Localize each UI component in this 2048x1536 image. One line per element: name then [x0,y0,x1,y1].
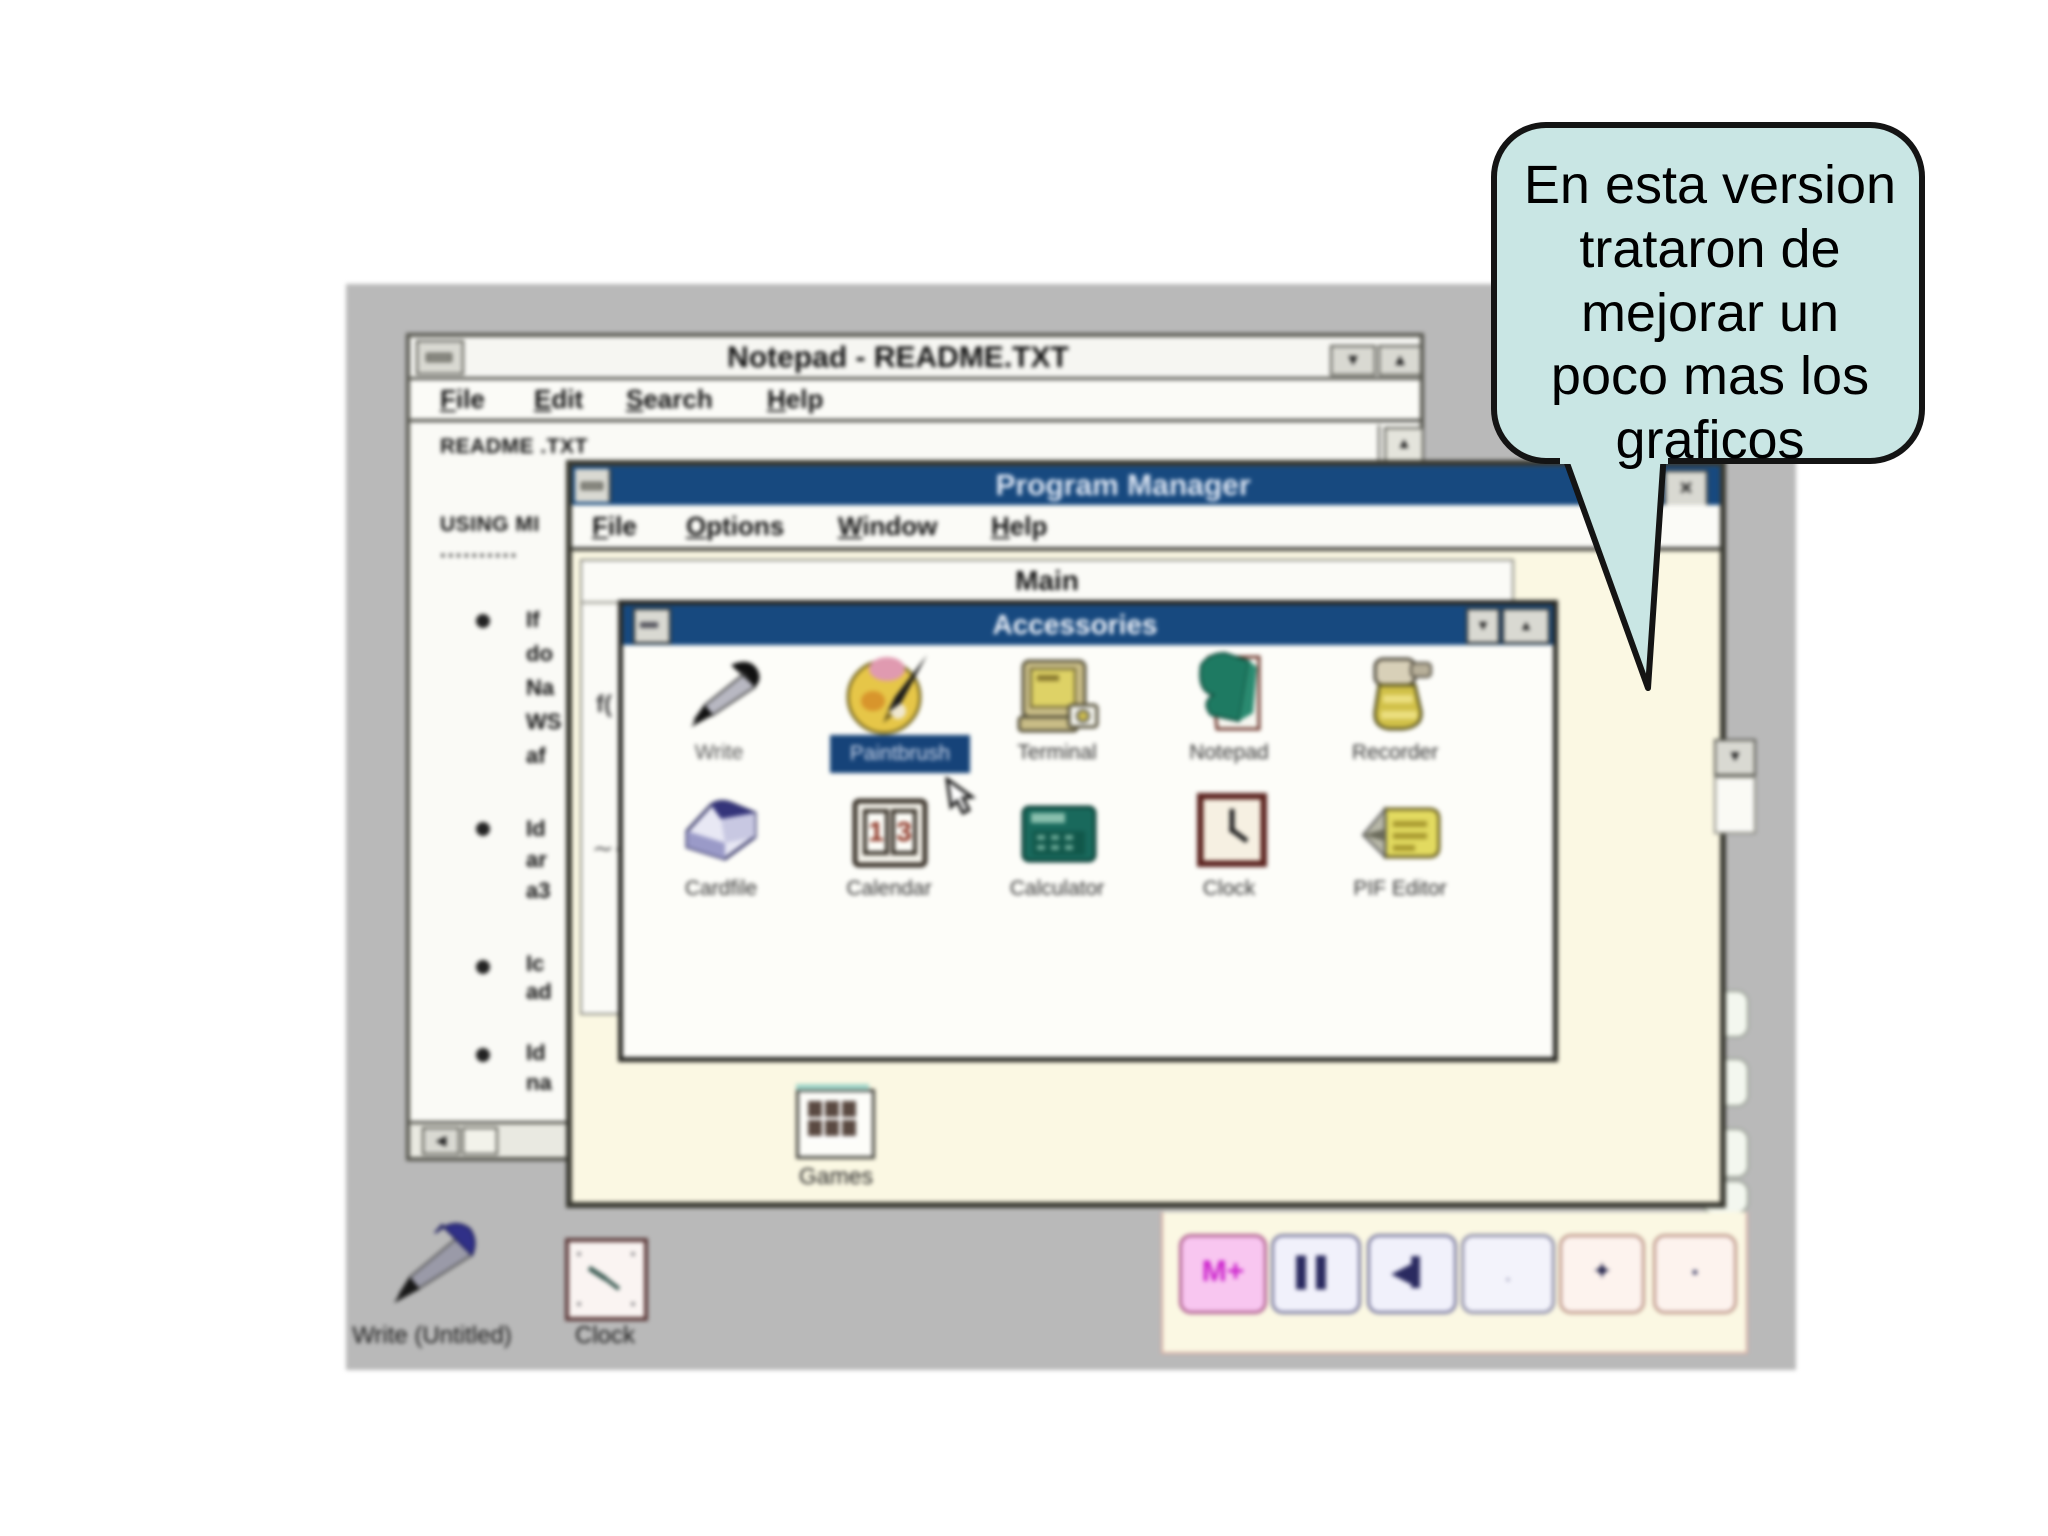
svg-text:1: 1 [868,816,884,847]
svg-text:3: 3 [896,816,912,847]
